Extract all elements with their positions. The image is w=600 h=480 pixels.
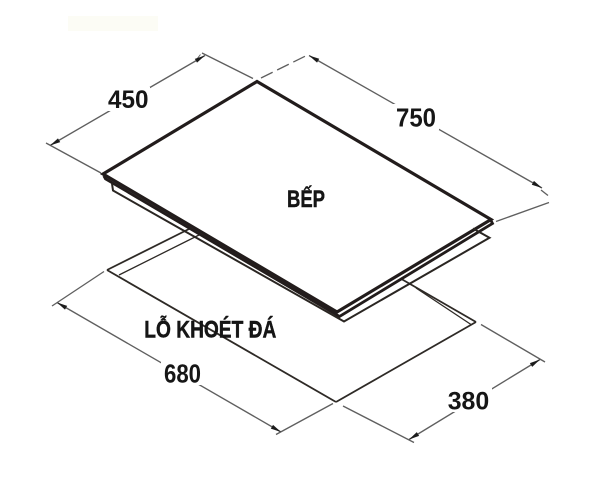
svg-text:750: 750 (396, 105, 436, 133)
svg-text:380: 380 (448, 388, 490, 416)
svg-text:680: 680 (164, 359, 201, 389)
svg-text:LỖ KHOÉT ĐÁ: LỖ KHOÉT ĐÁ (144, 315, 276, 344)
svg-text:BẾP: BẾP (287, 185, 325, 213)
svg-text:450: 450 (108, 87, 149, 114)
